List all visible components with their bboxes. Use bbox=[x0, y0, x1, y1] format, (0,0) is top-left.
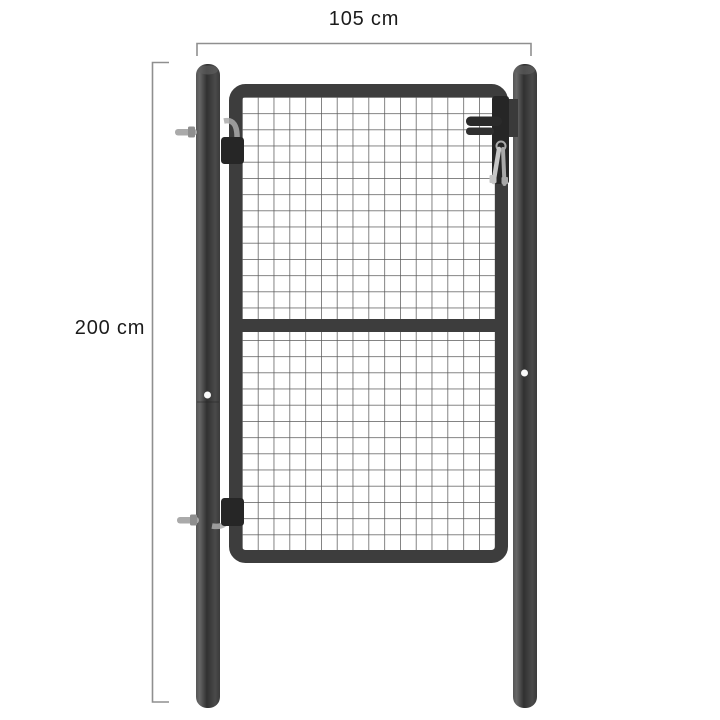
left-post bbox=[196, 64, 220, 708]
height-dimension-label: 200 cm bbox=[52, 318, 168, 338]
width-dimension-line bbox=[197, 44, 531, 57]
right-post bbox=[513, 64, 537, 708]
post-hole bbox=[204, 392, 211, 399]
gate-illustration bbox=[0, 0, 720, 720]
height-dimension-line bbox=[153, 63, 170, 703]
post-hole bbox=[521, 370, 528, 377]
width-dimension-label: 105 cm bbox=[264, 9, 464, 29]
product-dimension-diagram: 105 cm 200 cm bbox=[0, 0, 720, 720]
